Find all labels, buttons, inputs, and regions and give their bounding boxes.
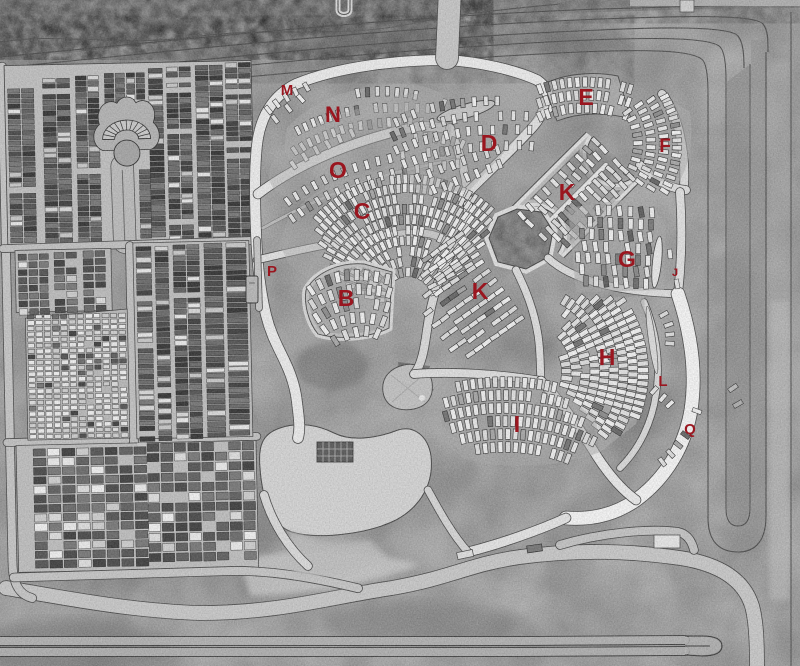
svg-text:K: K [472, 278, 489, 304]
svg-text:F: F [659, 136, 671, 157]
svg-text:E: E [578, 84, 593, 110]
svg-text:G: G [618, 246, 636, 272]
svg-text:D: D [481, 130, 498, 156]
svg-text:I: I [514, 411, 520, 437]
svg-text:B: B [338, 285, 355, 311]
svg-text:O: O [329, 157, 347, 183]
svg-text:C: C [354, 198, 371, 224]
svg-text:N: N [325, 102, 341, 127]
svg-text:P: P [267, 263, 277, 280]
svg-text:L: L [658, 373, 667, 390]
svg-text:H: H [599, 344, 616, 370]
svg-text:M: M [281, 82, 294, 99]
svg-text:K: K [559, 179, 576, 205]
svg-text:Q: Q [684, 421, 696, 438]
svg-text:J: J [672, 267, 678, 279]
